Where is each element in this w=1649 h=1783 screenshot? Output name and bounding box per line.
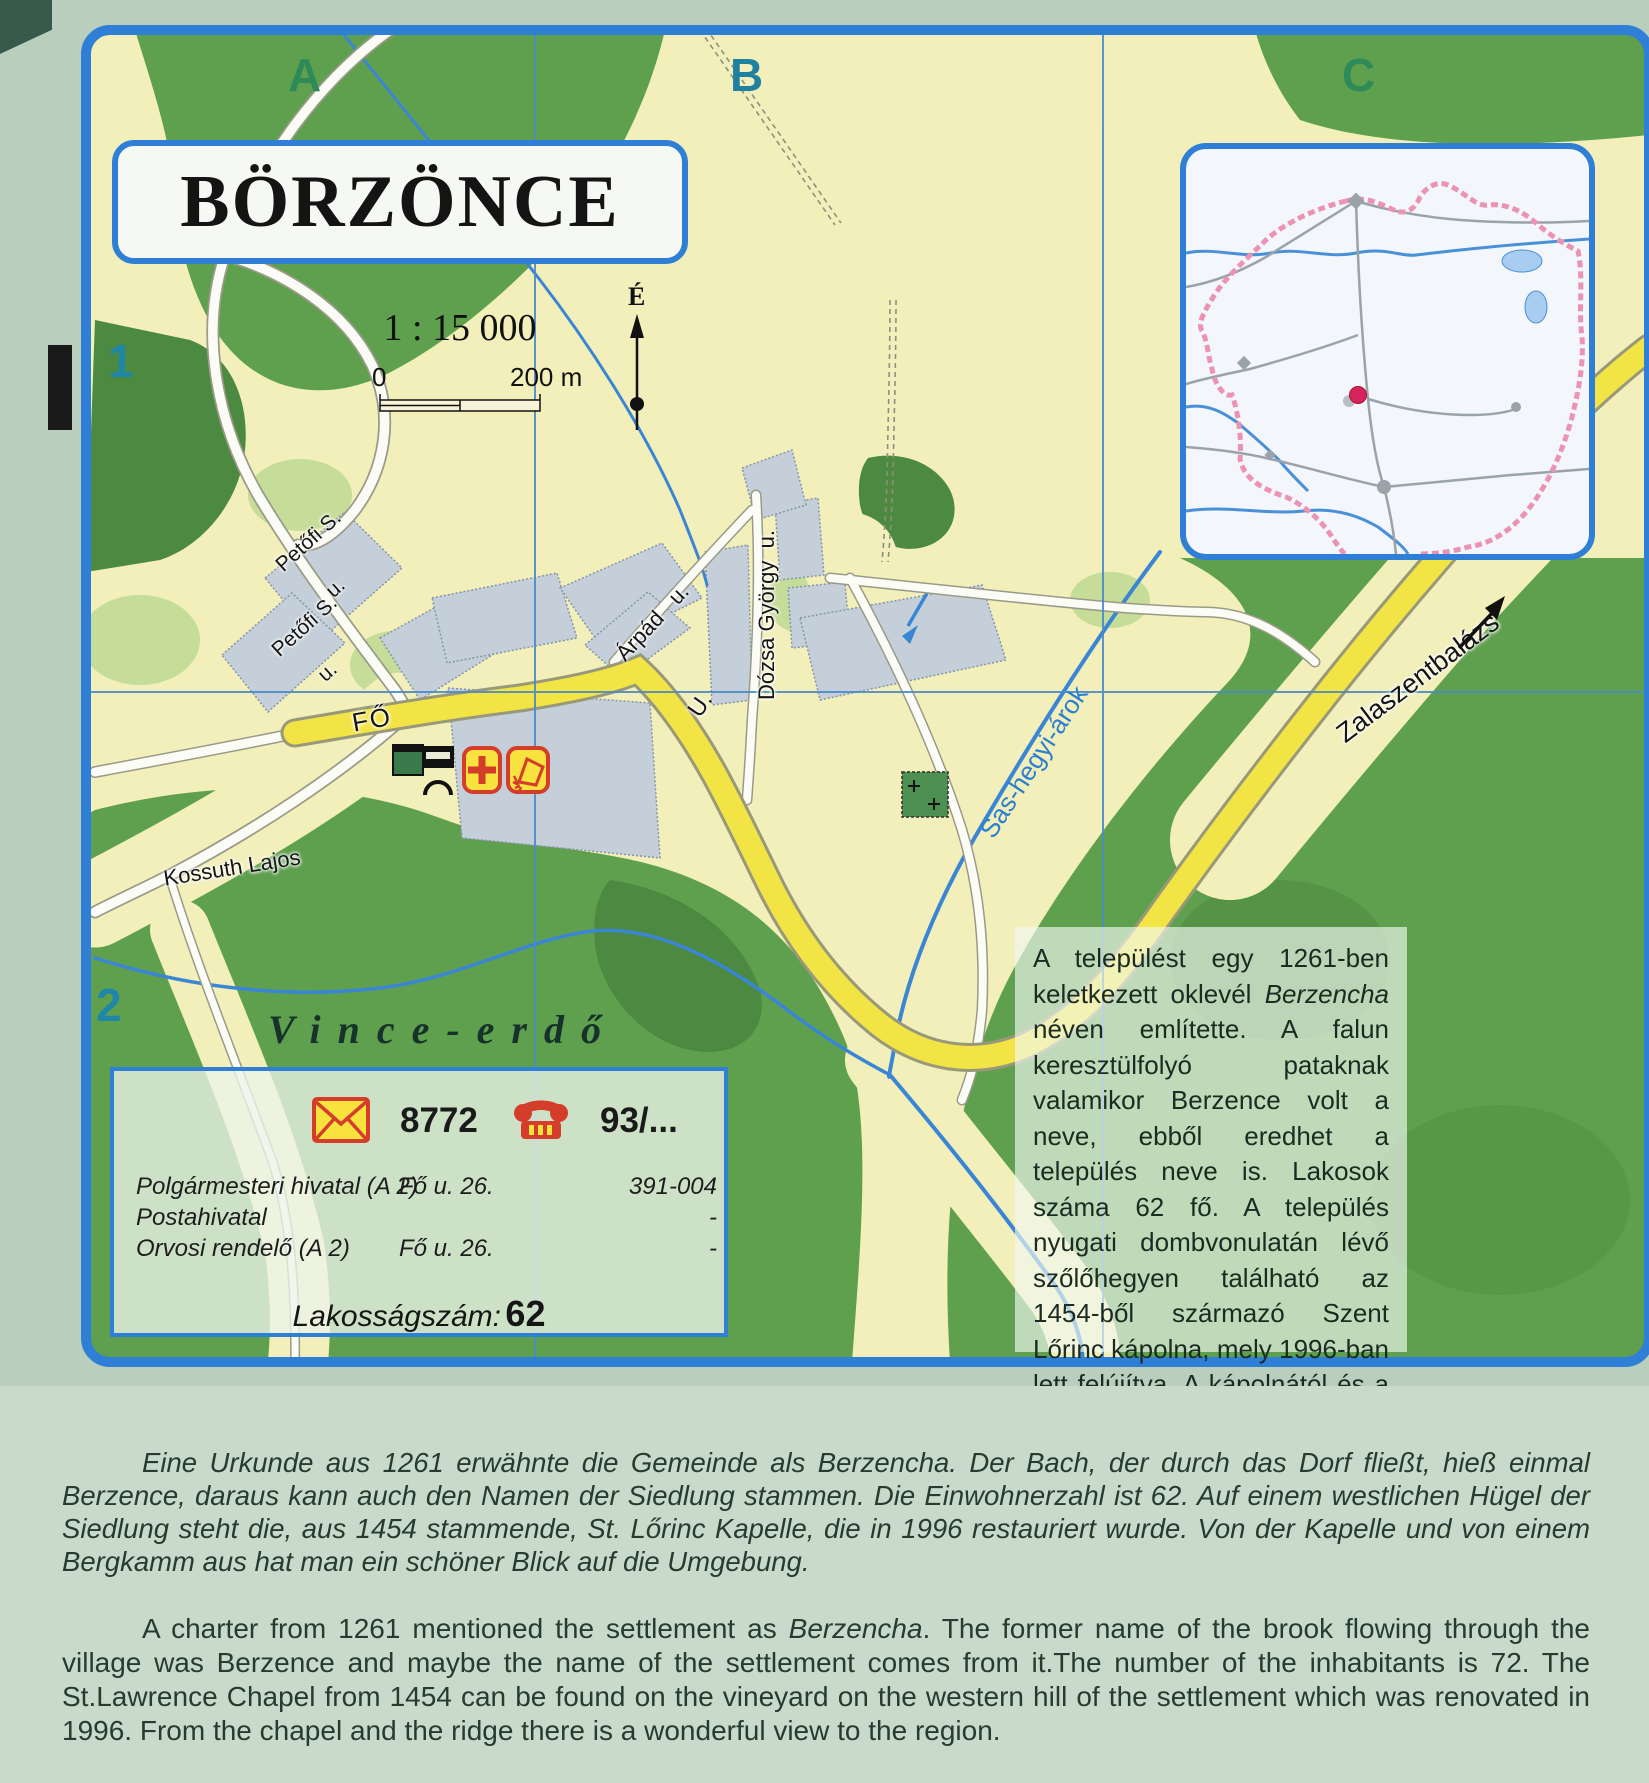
- scale-ratio: 1 : 15 000: [340, 306, 580, 350]
- grid-column-b: B: [730, 52, 763, 98]
- north-arrow-icon: [624, 312, 650, 434]
- north-label: É: [628, 282, 645, 312]
- german-description: Eine Urkunde aus 1261 erwähnte die Gemei…: [62, 1386, 1590, 1578]
- info-row-doctor: Orvosi rendelő (A 2) Fő u. 26. -: [114, 1235, 724, 1265]
- postal-code: 8772: [400, 1101, 478, 1141]
- facility-address: Fő u. 26.: [399, 1173, 494, 1201]
- population-label: Lakosságszám:: [293, 1300, 501, 1333]
- facility-name: Polgármesteri hivatal (A 2): [136, 1173, 418, 1201]
- map-title: BÖRZÖNCE: [180, 160, 620, 245]
- phone-icon: [512, 1095, 570, 1143]
- borzonce-location-dot: [1350, 387, 1367, 404]
- grid-row-1: 1: [108, 338, 134, 384]
- chapel-icon: [421, 746, 455, 796]
- facility-phone: 391-004: [514, 1173, 717, 1201]
- description-section: Eine Urkunde aus 1261 erwähnte die Gemei…: [0, 1386, 1649, 1783]
- map-sheet: BÖRZÖNCE 1 : 15 000 0 200 m É A B C 1 2 …: [0, 0, 1649, 1783]
- facility-name: Postahivatal: [136, 1204, 267, 1232]
- scale-zero: 0: [372, 362, 386, 393]
- en-text-pre: A charter from 1261 mentioned the settle…: [142, 1613, 789, 1644]
- en-text-name: Berzencha: [789, 1613, 923, 1644]
- post-office-icon: [506, 746, 550, 794]
- info-row-post-office: Postahivatal -: [114, 1204, 724, 1234]
- facility-phone: -: [514, 1204, 717, 1232]
- info-row-town-hall: Polgármesteri hivatal (A 2) Fő u. 26. 39…: [114, 1173, 724, 1203]
- english-description: A charter from 1261 mentioned the settle…: [62, 1612, 1590, 1748]
- street-label-dozsa: Dózsa György u.: [756, 530, 778, 700]
- cemetery-icon: [902, 772, 948, 817]
- info-box: 8772 93/... Polgármesteri hivatal (A 2) …: [110, 1067, 728, 1337]
- population-value: 62: [505, 1293, 545, 1334]
- townhall-icon: [392, 744, 424, 776]
- population-line: Lakosságszám: 62: [114, 1293, 724, 1335]
- scale-distance: 200 m: [510, 362, 582, 393]
- direction-arrow-icon: [1455, 592, 1513, 654]
- hungarian-description: A települést egy 1261-ben keletkezett ok…: [1015, 927, 1407, 1352]
- grid-column-c: C: [1342, 52, 1375, 98]
- hu-text-name: Berzencha: [1265, 979, 1389, 1009]
- facility-phone: -: [514, 1235, 717, 1263]
- region-inset-map: [1180, 143, 1595, 560]
- inset-terrain: [1186, 149, 1589, 554]
- map-title-box: BÖRZÖNCE: [112, 140, 688, 264]
- envelope-icon: [312, 1097, 370, 1143]
- phone-prefix: 93/...: [600, 1101, 678, 1141]
- de-text: Eine Urkunde aus 1261 erwähnte die Gemei…: [62, 1447, 1590, 1577]
- medical-cross-icon: [462, 746, 502, 794]
- street-label-fo: FŐ: [350, 703, 394, 736]
- facility-name: Orvosi rendelő (A 2): [136, 1235, 350, 1263]
- grid-row-2: 2: [96, 982, 122, 1028]
- forest-label-vince-erdo: Vince-erdő: [268, 1006, 618, 1053]
- facility-address: Fő u. 26.: [399, 1235, 494, 1263]
- grid-column-a: A: [288, 52, 321, 98]
- scale-bar: [378, 394, 546, 416]
